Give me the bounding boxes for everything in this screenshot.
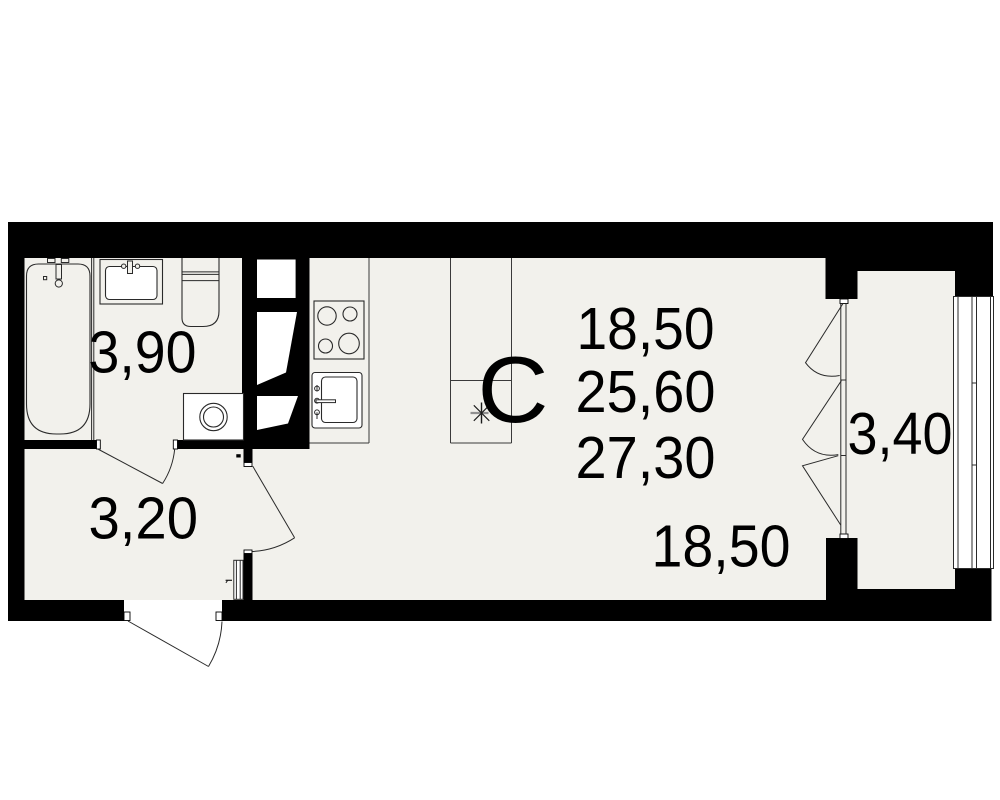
svg-text:С: С — [478, 337, 549, 442]
svg-text:18,50: 18,50 — [652, 514, 791, 580]
svg-text:3,40: 3,40 — [848, 401, 953, 467]
svg-text:25,60: 25,60 — [576, 359, 716, 425]
svg-text:27,30: 27,30 — [576, 425, 716, 491]
svg-text:18,50: 18,50 — [577, 296, 715, 362]
svg-text:3,90: 3,90 — [89, 320, 197, 386]
svg-text:3,20: 3,20 — [89, 486, 199, 552]
